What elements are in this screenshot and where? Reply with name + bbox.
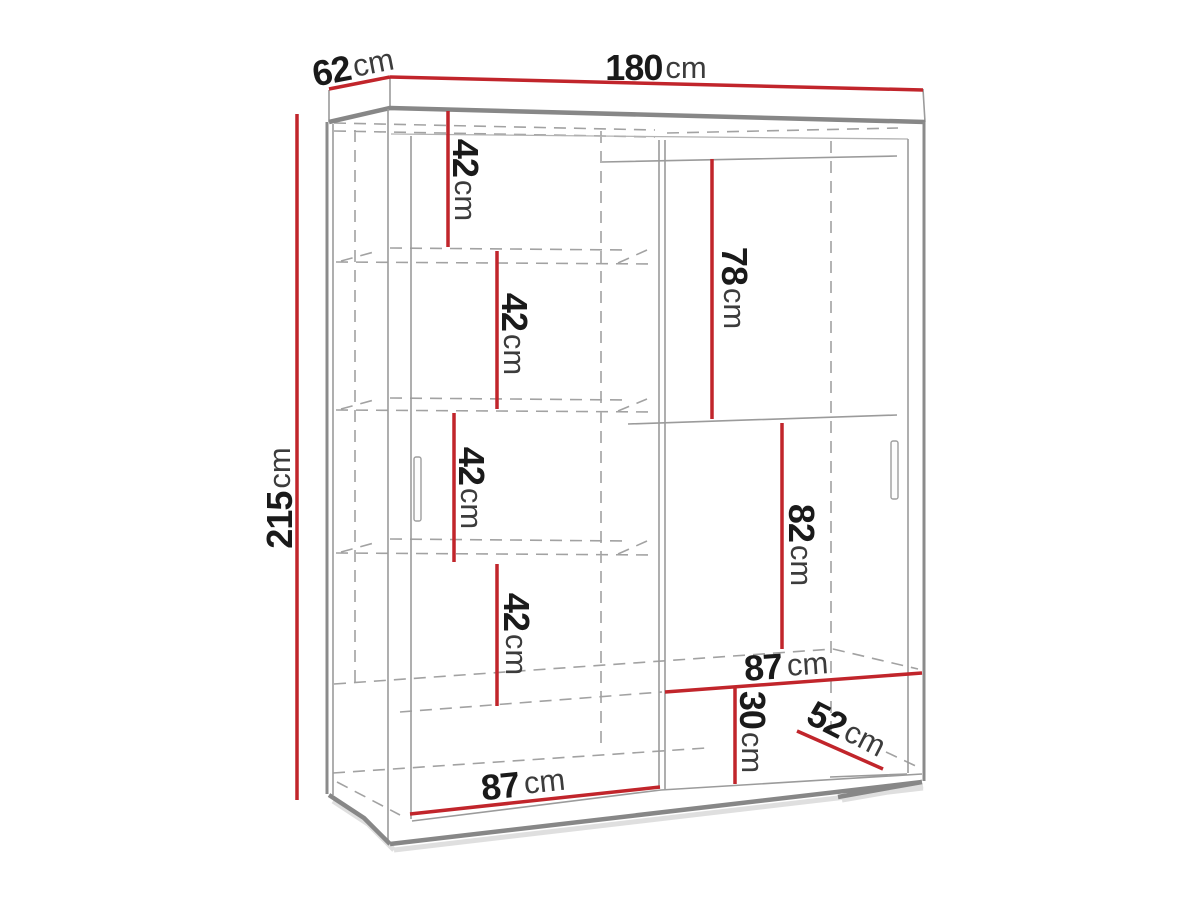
dimension-left-gap-1: 42cm	[446, 111, 487, 247]
dimension-label-42-2: 42cm	[495, 293, 536, 375]
dimension-label-30: 30cm	[733, 691, 774, 773]
dimension-total-height: 215cm	[259, 114, 300, 800]
dimension-label-215: 215cm	[259, 447, 300, 548]
dimension-bottom-right-width: 87cm	[665, 642, 922, 692]
dimension-label-82: 82cm	[782, 504, 823, 586]
dimension-total-width: 180cm	[390, 47, 923, 91]
dimension-label-78: 78cm	[715, 247, 756, 329]
dimension-label-180: 180cm	[605, 47, 706, 88]
dimension-label-42-1: 42cm	[446, 139, 487, 221]
wardrobe-dimension-diagram: 62cm 180cm 215cm 42cm 42cm 42cm 42cm 78c…	[0, 0, 1200, 900]
top-panel-underside	[329, 108, 925, 122]
right-door-handle	[891, 441, 898, 499]
dimension-bottom-niche-height: 30cm	[733, 688, 774, 784]
body-vertical-edges	[333, 109, 388, 844]
left-door-handle	[414, 457, 421, 521]
dimension-right-upper-height: 78cm	[712, 159, 756, 419]
dimension-label-62: 62cm	[309, 38, 398, 94]
dimension-label-42-4: 42cm	[497, 593, 538, 675]
dimension-right-lower-height: 82cm	[782, 423, 823, 649]
dimension-left-gap-2: 42cm	[495, 251, 536, 409]
dimension-label-42-3: 42cm	[452, 447, 493, 529]
dimension-left-gap-4: 42cm	[497, 564, 538, 706]
dimension-total-depth-top: 62cm	[309, 38, 398, 94]
dimension-bottom-depth: 52cm	[797, 692, 893, 769]
